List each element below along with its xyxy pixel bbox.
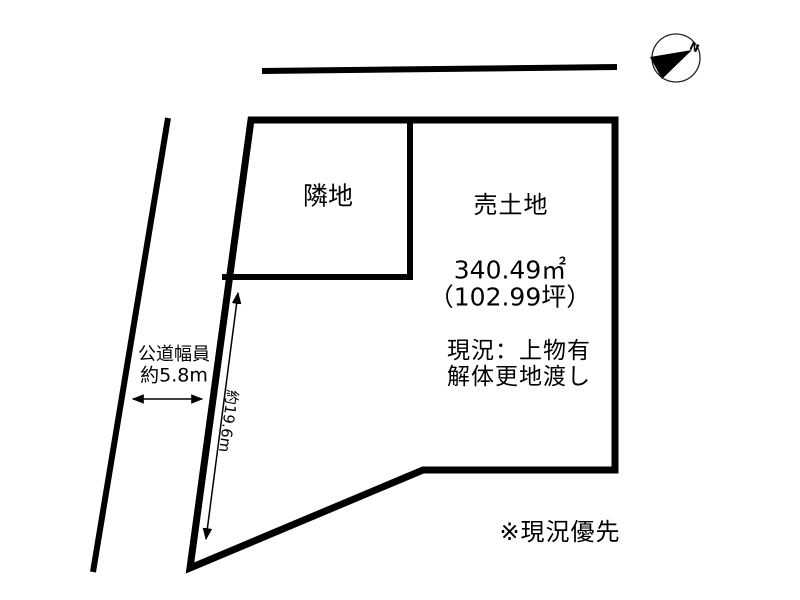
condition-line1: 現況：上物有 (447, 339, 591, 364)
compass-needle-icon (650, 50, 692, 79)
road-top-edge-line (262, 67, 617, 71)
sale-parcel-label: 売土地 (474, 192, 549, 218)
plan-drawing (0, 0, 800, 600)
neighbor-parcel-label: 隣地 (303, 182, 353, 210)
road-width-title: 公道幅員 (138, 345, 210, 365)
area-tsubo-label: （102.99坪） (429, 283, 591, 311)
area-sqm-label: 340.49㎡ (454, 256, 566, 284)
road-width-value: 約5.8m (140, 366, 208, 387)
land-plot-diagram: N 隣地 売土地 340.49㎡ （102.99坪） 現況：上物有 解体更地渡し… (0, 0, 800, 600)
priority-note: ※現況優先 (499, 519, 620, 545)
condition-line2: 解体更地渡し (447, 365, 591, 390)
